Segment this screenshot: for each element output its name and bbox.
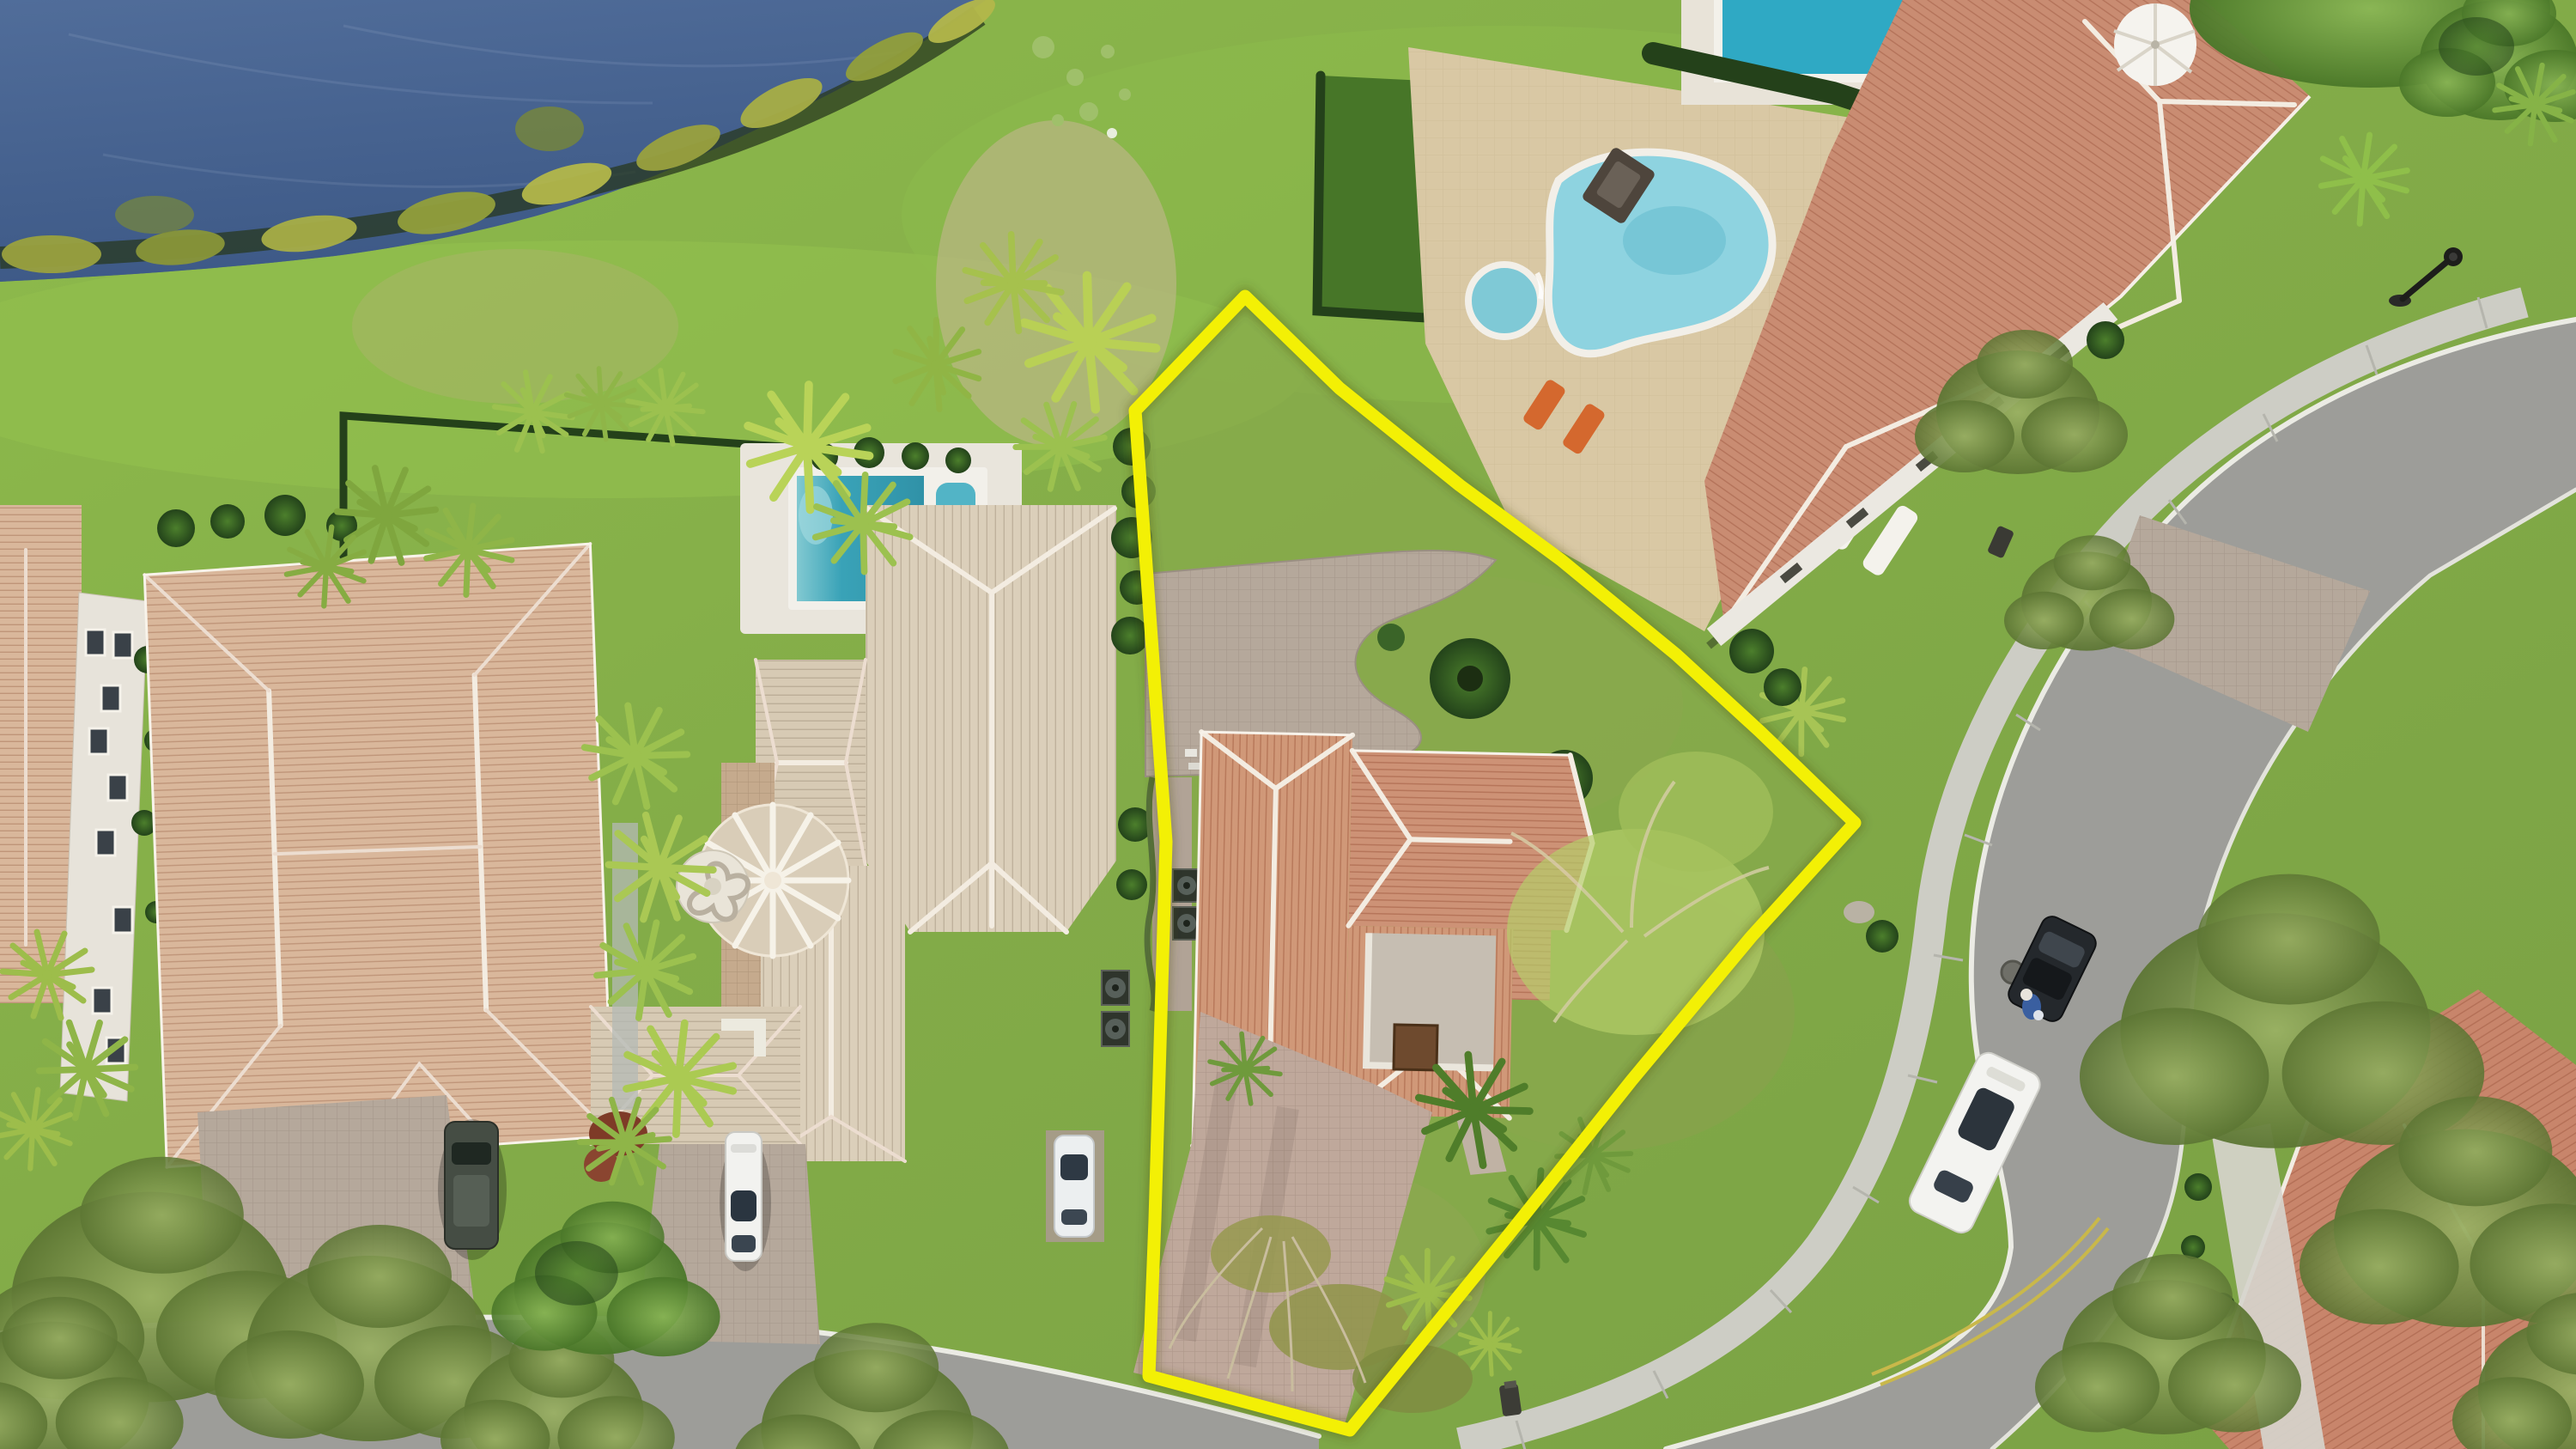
white-car-rear-pad xyxy=(1054,1135,1094,1237)
suv-left-house xyxy=(438,1119,507,1260)
kidney-spa xyxy=(1468,265,1540,337)
dry-patch xyxy=(352,249,678,404)
aerial-photo-stage xyxy=(0,0,2576,1449)
fire-bowl-grill xyxy=(1394,1025,1437,1070)
kidney-pool-deep-end xyxy=(1623,206,1726,275)
left-house xyxy=(144,544,613,1167)
left-house-roof xyxy=(144,544,613,1167)
aerial-photo xyxy=(0,0,2576,1449)
patio-umbrella xyxy=(2114,3,2196,86)
